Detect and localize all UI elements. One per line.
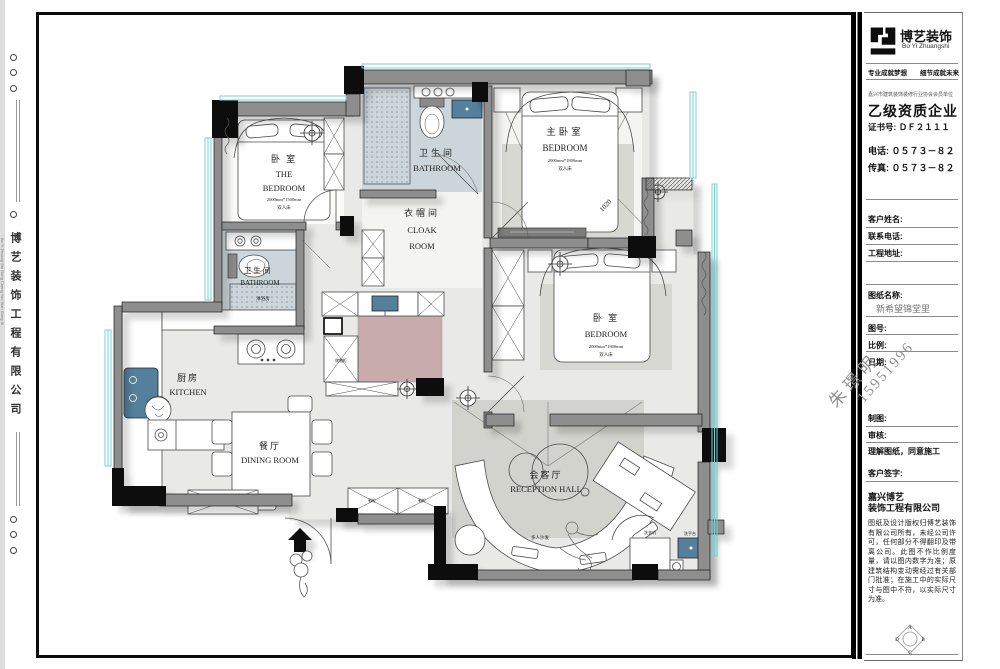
label-dining-en: DINING ROOM [241, 455, 299, 465]
label-kitchen-cn: 厨房 [177, 372, 199, 383]
label-master-bed: 双人床 [558, 165, 572, 172]
divider [866, 284, 958, 285]
title-block: 博艺装饰 Bo Yi Zhuangshi 专业成就梦想 细节成就未来 嘉兴市建筑… [864, 12, 963, 661]
field-contact-phone: 联系电话: [868, 231, 958, 242]
divider [866, 199, 958, 200]
label-bedroom2-bed: 双人床 [599, 351, 613, 358]
divider [866, 244, 958, 245]
floor-plan: 卧 室 THE BEDROOM 2000mm*1500mm 双人床 卫生间 BA… [0, 0, 1000, 669]
label-bathroom1-cn: 卫生间 [419, 147, 455, 158]
label-bedroom1-en2: BEDROOM [263, 183, 306, 193]
label-basin: 洗手台 [684, 530, 696, 536]
svg-text:B: B [921, 638, 925, 643]
label-bedroom1-en1: THE [276, 169, 293, 179]
svg-text:D: D [895, 638, 899, 643]
entrance-arrow-icon [288, 528, 312, 552]
label-bedroom1-cn: 卧 室 [271, 153, 297, 164]
label-shoe1: 鞋柜 [368, 498, 376, 503]
label-cloak-en1: CLOAK [407, 225, 437, 235]
label-bathroom2-cn: 卫生间 [244, 265, 273, 275]
drawing-sheet: { "left_strip": { "company_vertical": "博… [0, 0, 1000, 669]
label-kitchen-en: KITCHEN [169, 387, 206, 397]
label-bedroom1-bed: 双人床 [277, 204, 291, 211]
cert-no: 证书号: ＤＦ２１１１ [868, 121, 958, 133]
divider [866, 63, 958, 64]
field-project-address: 工程地址: [868, 248, 958, 259]
label-bedroom2-en: BEDROOM [585, 329, 628, 339]
label-hall-cn: 会客厅 [529, 469, 562, 480]
divider [866, 654, 958, 655]
label-shower: 淋浴房 [256, 295, 270, 302]
label-hall-en: RECEPTION HALL [510, 484, 582, 494]
label-bedroom1-size: 2000mm*1500mm [267, 197, 302, 202]
divider [866, 79, 958, 80]
copyright-disclaimer: 图纸及设计版权归博艺装饰有限公司所有，未经公司许可，任何部分不得翻印及带离公司。… [868, 519, 956, 605]
label-master-size: 2000mm*1800mm [548, 158, 583, 163]
phone: 电话: ０５７３－８２ [868, 144, 958, 157]
label-master-cn: 主卧室 [546, 126, 584, 138]
field-drafter: 制图: [868, 413, 958, 424]
field-customer-name: 客户姓名: [868, 214, 958, 225]
label-master-en: BEDROOM [542, 143, 587, 153]
grade-title: 乙级资质企业 [868, 101, 958, 121]
slogan-right: 细节成就未来 [920, 67, 1000, 77]
field-reviewer: 审核: [868, 430, 958, 441]
label-storage: 储物柜 [335, 358, 347, 363]
label-shoe2: 鞋柜 [418, 498, 426, 503]
label-bedroom2-cn: 卧 室 [593, 312, 619, 323]
divider [866, 426, 958, 427]
logo-text-en: Bo Yi Zhuangshi [902, 43, 992, 50]
divider [866, 442, 958, 443]
label-dining-cn: 餐厅 [259, 440, 281, 451]
label-cloak-en2: ROOM [409, 241, 435, 251]
company-logo-icon [867, 23, 899, 59]
field-customer-signature: 客户签字: [868, 468, 958, 479]
divider [866, 481, 958, 482]
label-bathroom1-en: BATHROOM [413, 163, 461, 173]
label-cloak-cn: 衣帽间 [404, 207, 440, 218]
agree-statement: 理解图纸，同意施工 [868, 446, 958, 457]
divider [866, 261, 958, 262]
divider [866, 227, 958, 228]
label-bedroom2-size: 2000mm*1800mm [589, 344, 624, 349]
label-washer: 洗衣机 [644, 529, 656, 535]
label-bathroom2-en: BATHROOM [240, 279, 280, 287]
plant-sketch [290, 551, 312, 597]
label-sofa: 多人沙发 [531, 534, 549, 541]
company-name-line2: 装饰工程有限公司 [868, 501, 958, 514]
fine-print: 嘉兴市建筑装饰装修行业协会会员单位 [868, 91, 958, 98]
fax: 传真: ０５７３－８２ [868, 161, 958, 174]
svg-text:A: A [908, 626, 912, 631]
